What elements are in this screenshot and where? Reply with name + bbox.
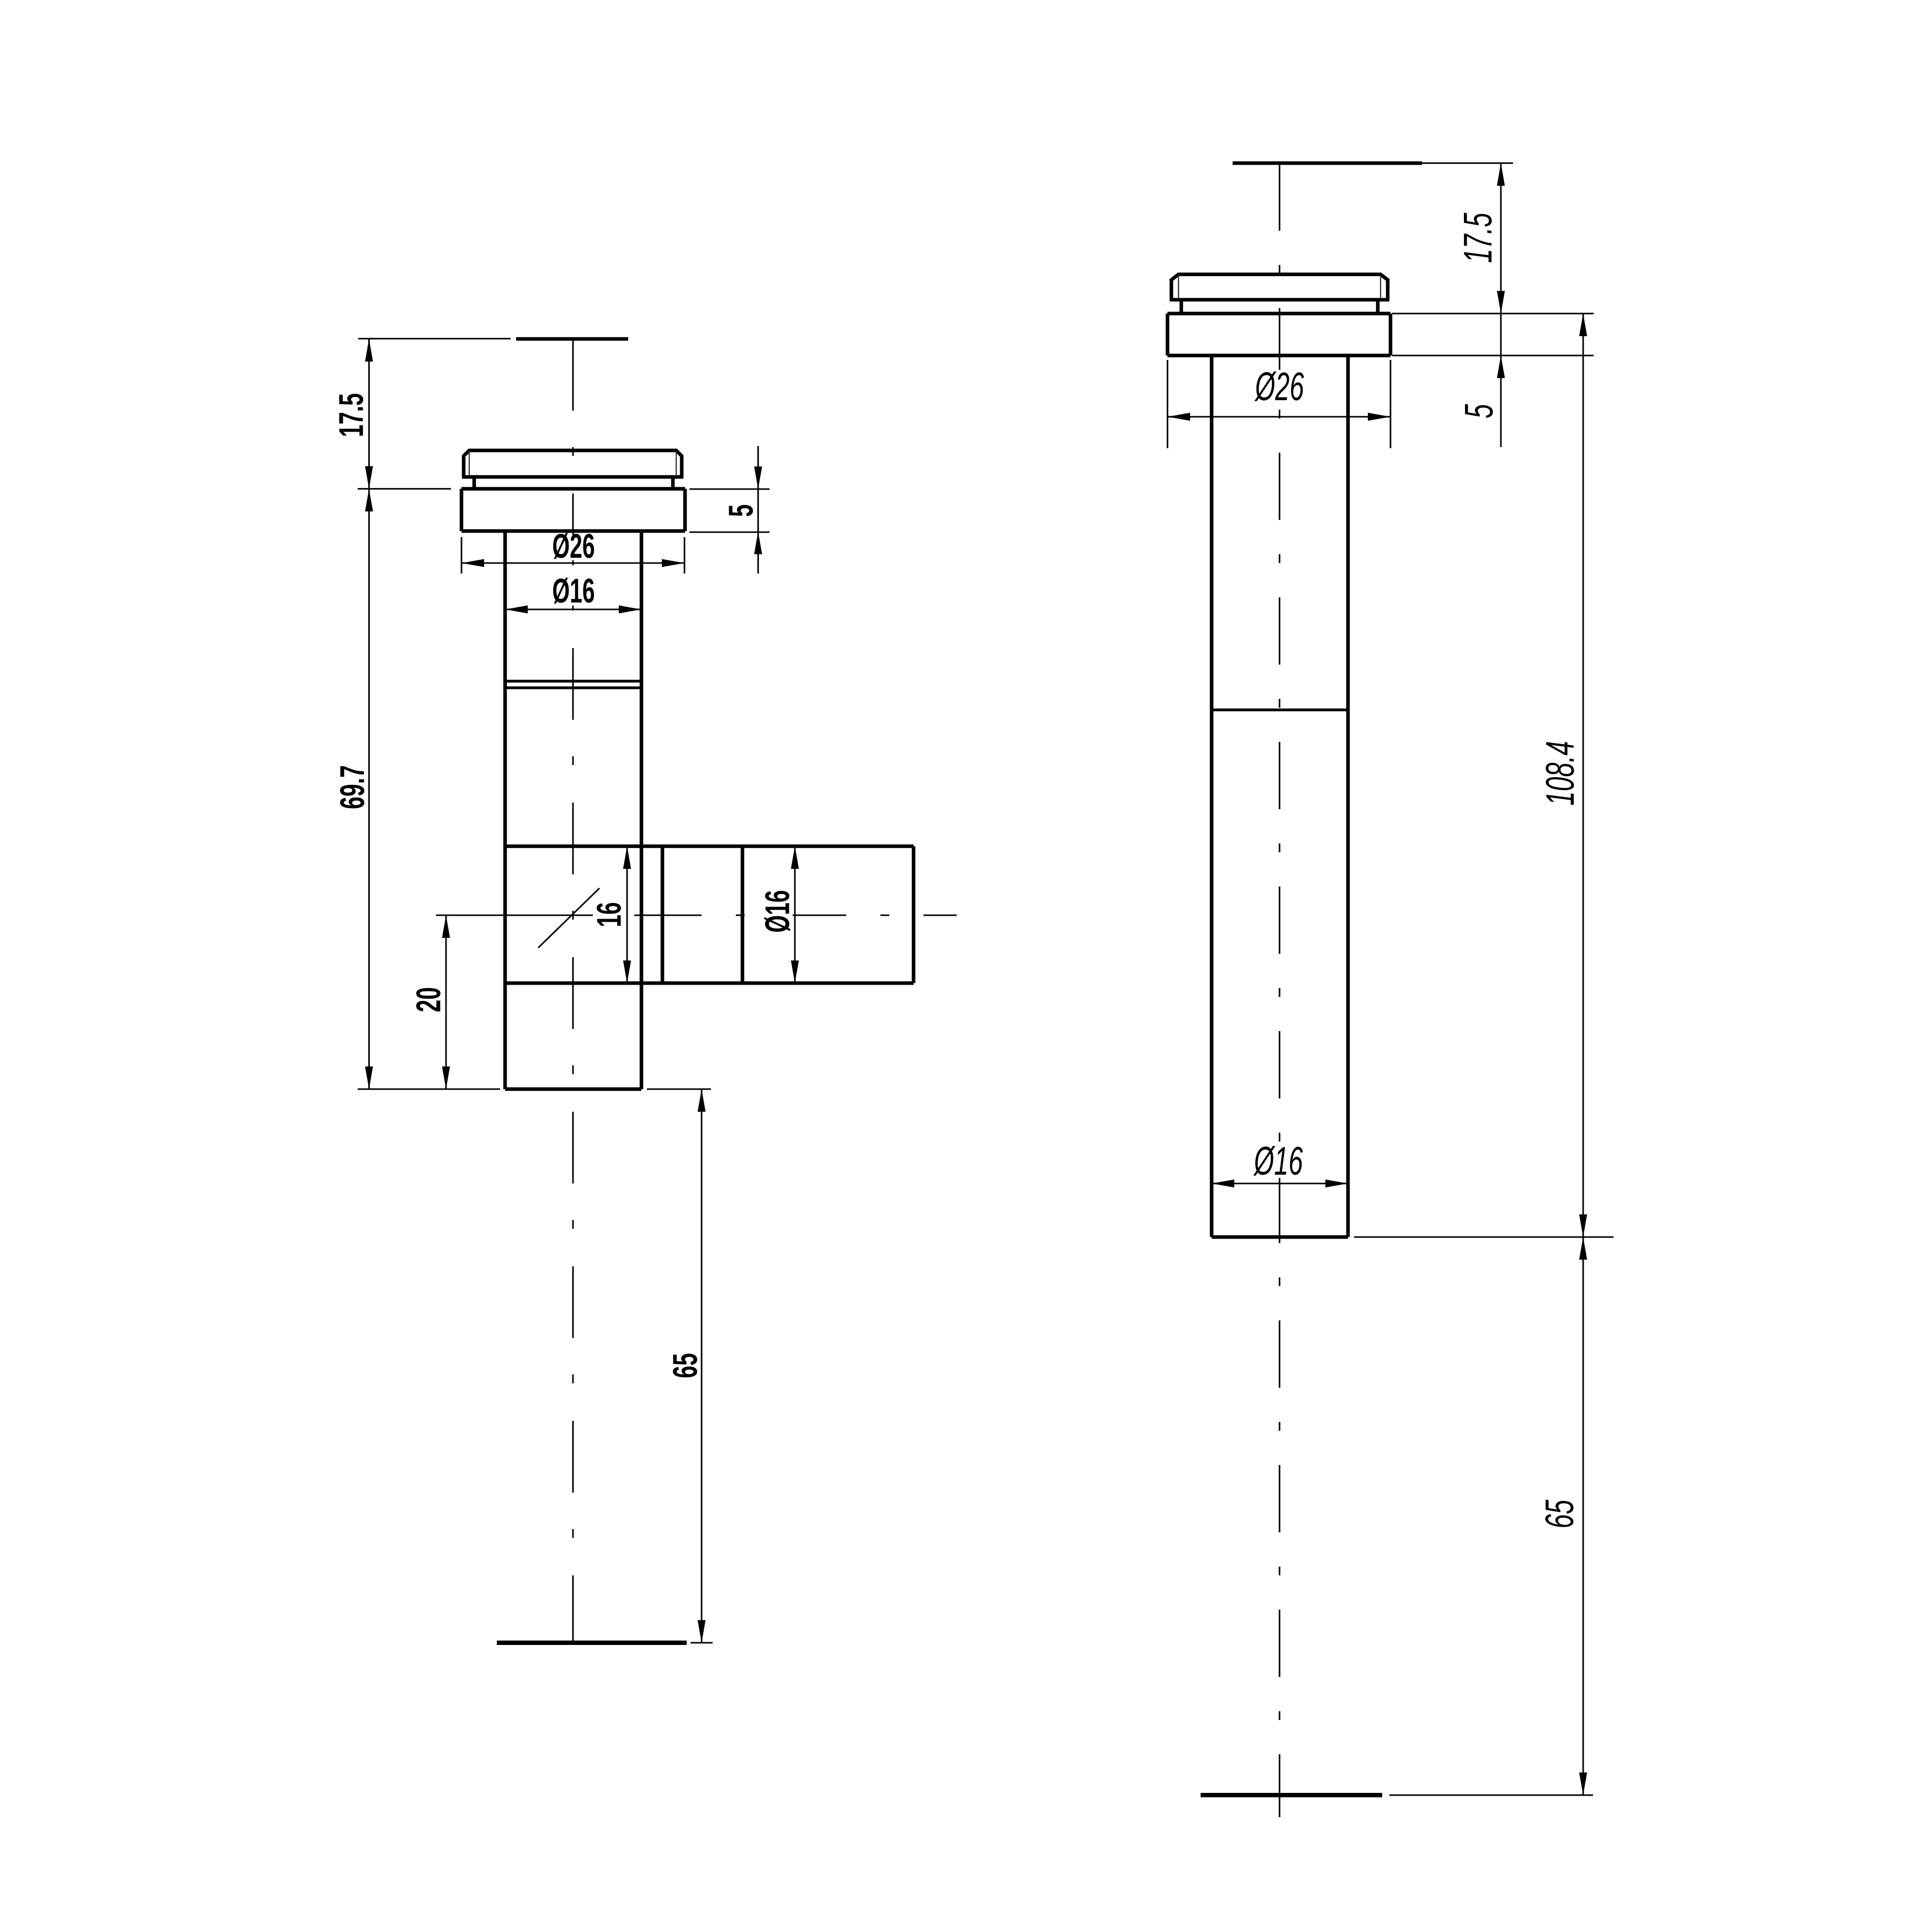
svg-text:17.5: 17.5 [332, 393, 371, 437]
svg-text:Ø16: Ø16 [552, 572, 595, 611]
svg-text:108.4: 108.4 [1538, 741, 1583, 805]
svg-text:17.5: 17.5 [1456, 213, 1500, 263]
svg-text:16: 16 [590, 902, 629, 927]
svg-text:65: 65 [1537, 1500, 1582, 1528]
svg-text:69.7: 69.7 [333, 765, 372, 809]
svg-text:Ø16: Ø16 [1253, 1139, 1303, 1183]
svg-text:20: 20 [410, 987, 448, 1012]
svg-text:5: 5 [722, 505, 761, 517]
svg-text:Ø26: Ø26 [1254, 364, 1304, 409]
svg-text:Ø26: Ø26 [552, 527, 595, 566]
svg-text:Ø16: Ø16 [758, 890, 797, 932]
svg-text:5: 5 [1457, 404, 1501, 418]
svg-text:65: 65 [666, 1353, 705, 1378]
